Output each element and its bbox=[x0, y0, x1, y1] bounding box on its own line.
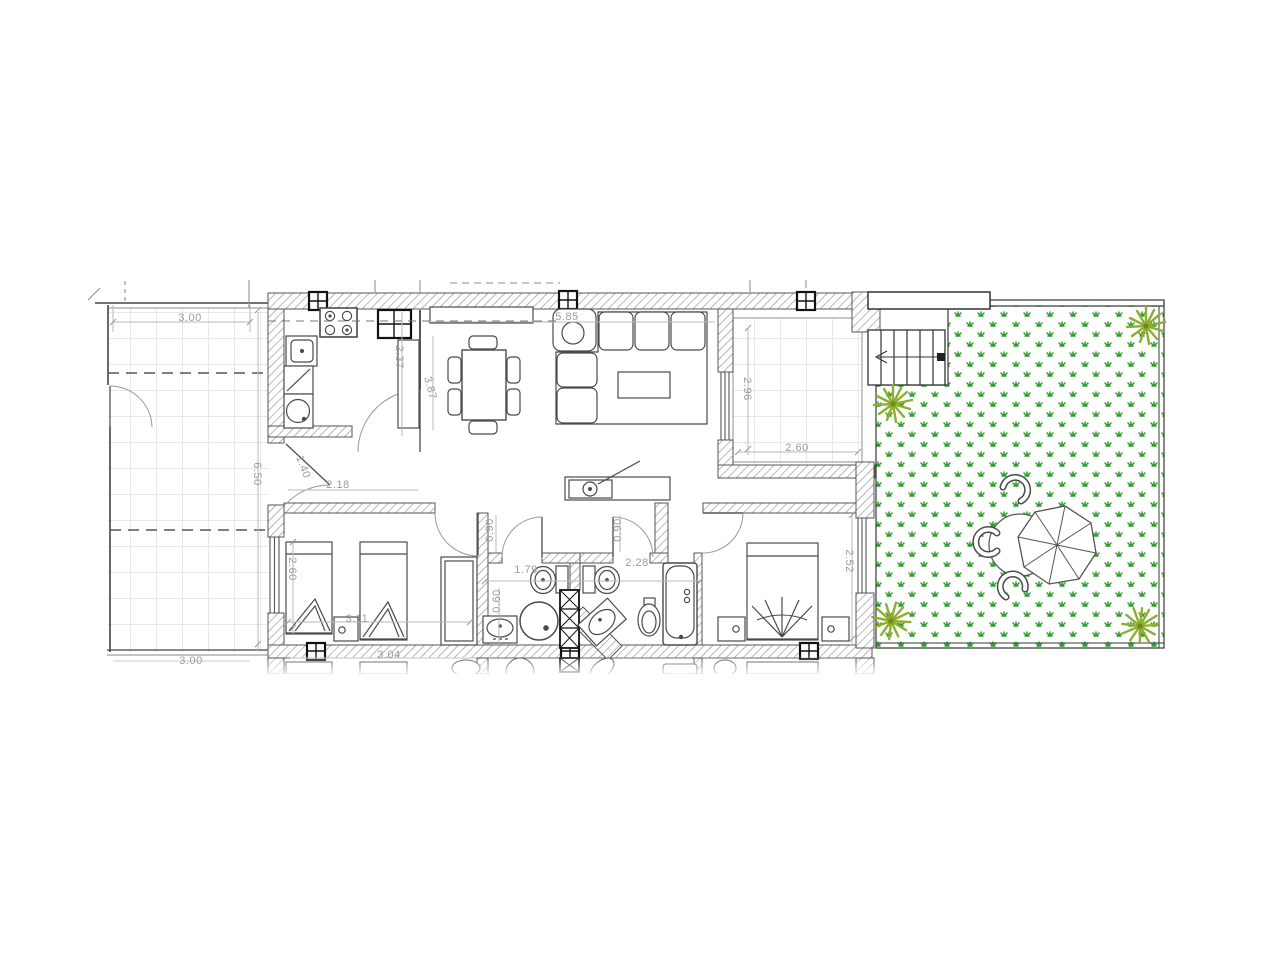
floor-plan-drawing bbox=[0, 0, 1280, 960]
dim-label: 3.00 bbox=[178, 312, 201, 324]
floor-plan-canvas: 3.00 6.50 2.37 3.87 5.85 2.96 2.60 1.40 … bbox=[0, 0, 1280, 960]
living-terrace-window bbox=[721, 372, 729, 440]
dim-label: 6.50 bbox=[251, 462, 263, 485]
toilet-icon bbox=[583, 566, 620, 594]
wardrobe bbox=[441, 557, 477, 645]
garden-top-wall bbox=[990, 300, 1164, 306]
dim-label: 1.79 bbox=[514, 564, 537, 576]
duct-shaft bbox=[560, 590, 579, 648]
bathroom-sink-icon bbox=[483, 616, 517, 643]
bathtub-icon bbox=[663, 563, 697, 645]
bath1-door-swing bbox=[502, 517, 542, 557]
double-bed bbox=[747, 543, 818, 640]
kitchen-sink-icon bbox=[286, 336, 317, 366]
coffee-table bbox=[618, 372, 670, 398]
hall-desk bbox=[565, 461, 670, 500]
nightstand bbox=[822, 617, 849, 641]
wall-above-stairs bbox=[868, 292, 990, 309]
dim-label: 3.00 bbox=[179, 655, 202, 667]
single-bed bbox=[360, 542, 407, 640]
bedroom1 bbox=[286, 542, 477, 645]
bedroom2-door-swing bbox=[703, 513, 743, 553]
dining-chair bbox=[448, 357, 461, 383]
bedroom2 bbox=[718, 543, 849, 641]
fridge-icon bbox=[378, 310, 411, 338]
dim-label: 2.96 bbox=[741, 377, 753, 400]
nightstand bbox=[718, 617, 745, 641]
dim-label: 0.90 bbox=[612, 518, 624, 541]
dim-label: 2.52 bbox=[843, 549, 855, 572]
dining-chair bbox=[507, 357, 520, 383]
dim-label: 3.04 bbox=[377, 649, 400, 661]
dining-chair bbox=[507, 389, 520, 415]
dim-label: 0.60 bbox=[491, 589, 503, 612]
dining-chair bbox=[469, 421, 497, 434]
bedroom1-door-swing bbox=[435, 513, 478, 556]
dim-label: 2.28 bbox=[625, 557, 648, 569]
dim-label: 2.18 bbox=[326, 479, 349, 491]
bottom-fade bbox=[80, 652, 1190, 680]
living-room bbox=[430, 307, 707, 434]
dining-chair bbox=[448, 389, 461, 415]
bathroom2 bbox=[578, 563, 697, 646]
stove-icon bbox=[320, 308, 357, 337]
dim-label: 0.90 bbox=[484, 518, 496, 541]
stairs bbox=[868, 330, 945, 385]
terrace-left bbox=[95, 303, 268, 655]
dining-chair bbox=[469, 336, 497, 349]
dining-table bbox=[448, 336, 520, 434]
dim-label: 5.85 bbox=[555, 311, 578, 323]
dim-label: 2.60 bbox=[785, 442, 808, 454]
dim-label: 2.60 bbox=[286, 557, 298, 580]
dim-label: 2.37 bbox=[393, 345, 405, 368]
washing-machine-icon bbox=[284, 394, 313, 428]
bedroom1-window bbox=[270, 537, 279, 613]
bedroom2-window bbox=[858, 518, 866, 593]
bathroom-sink-icon bbox=[578, 598, 626, 646]
kitchen-cabinet bbox=[284, 366, 313, 394]
shower-icon bbox=[520, 602, 558, 640]
dim-label: 3.11 bbox=[346, 613, 369, 625]
bidet-icon bbox=[638, 598, 660, 636]
